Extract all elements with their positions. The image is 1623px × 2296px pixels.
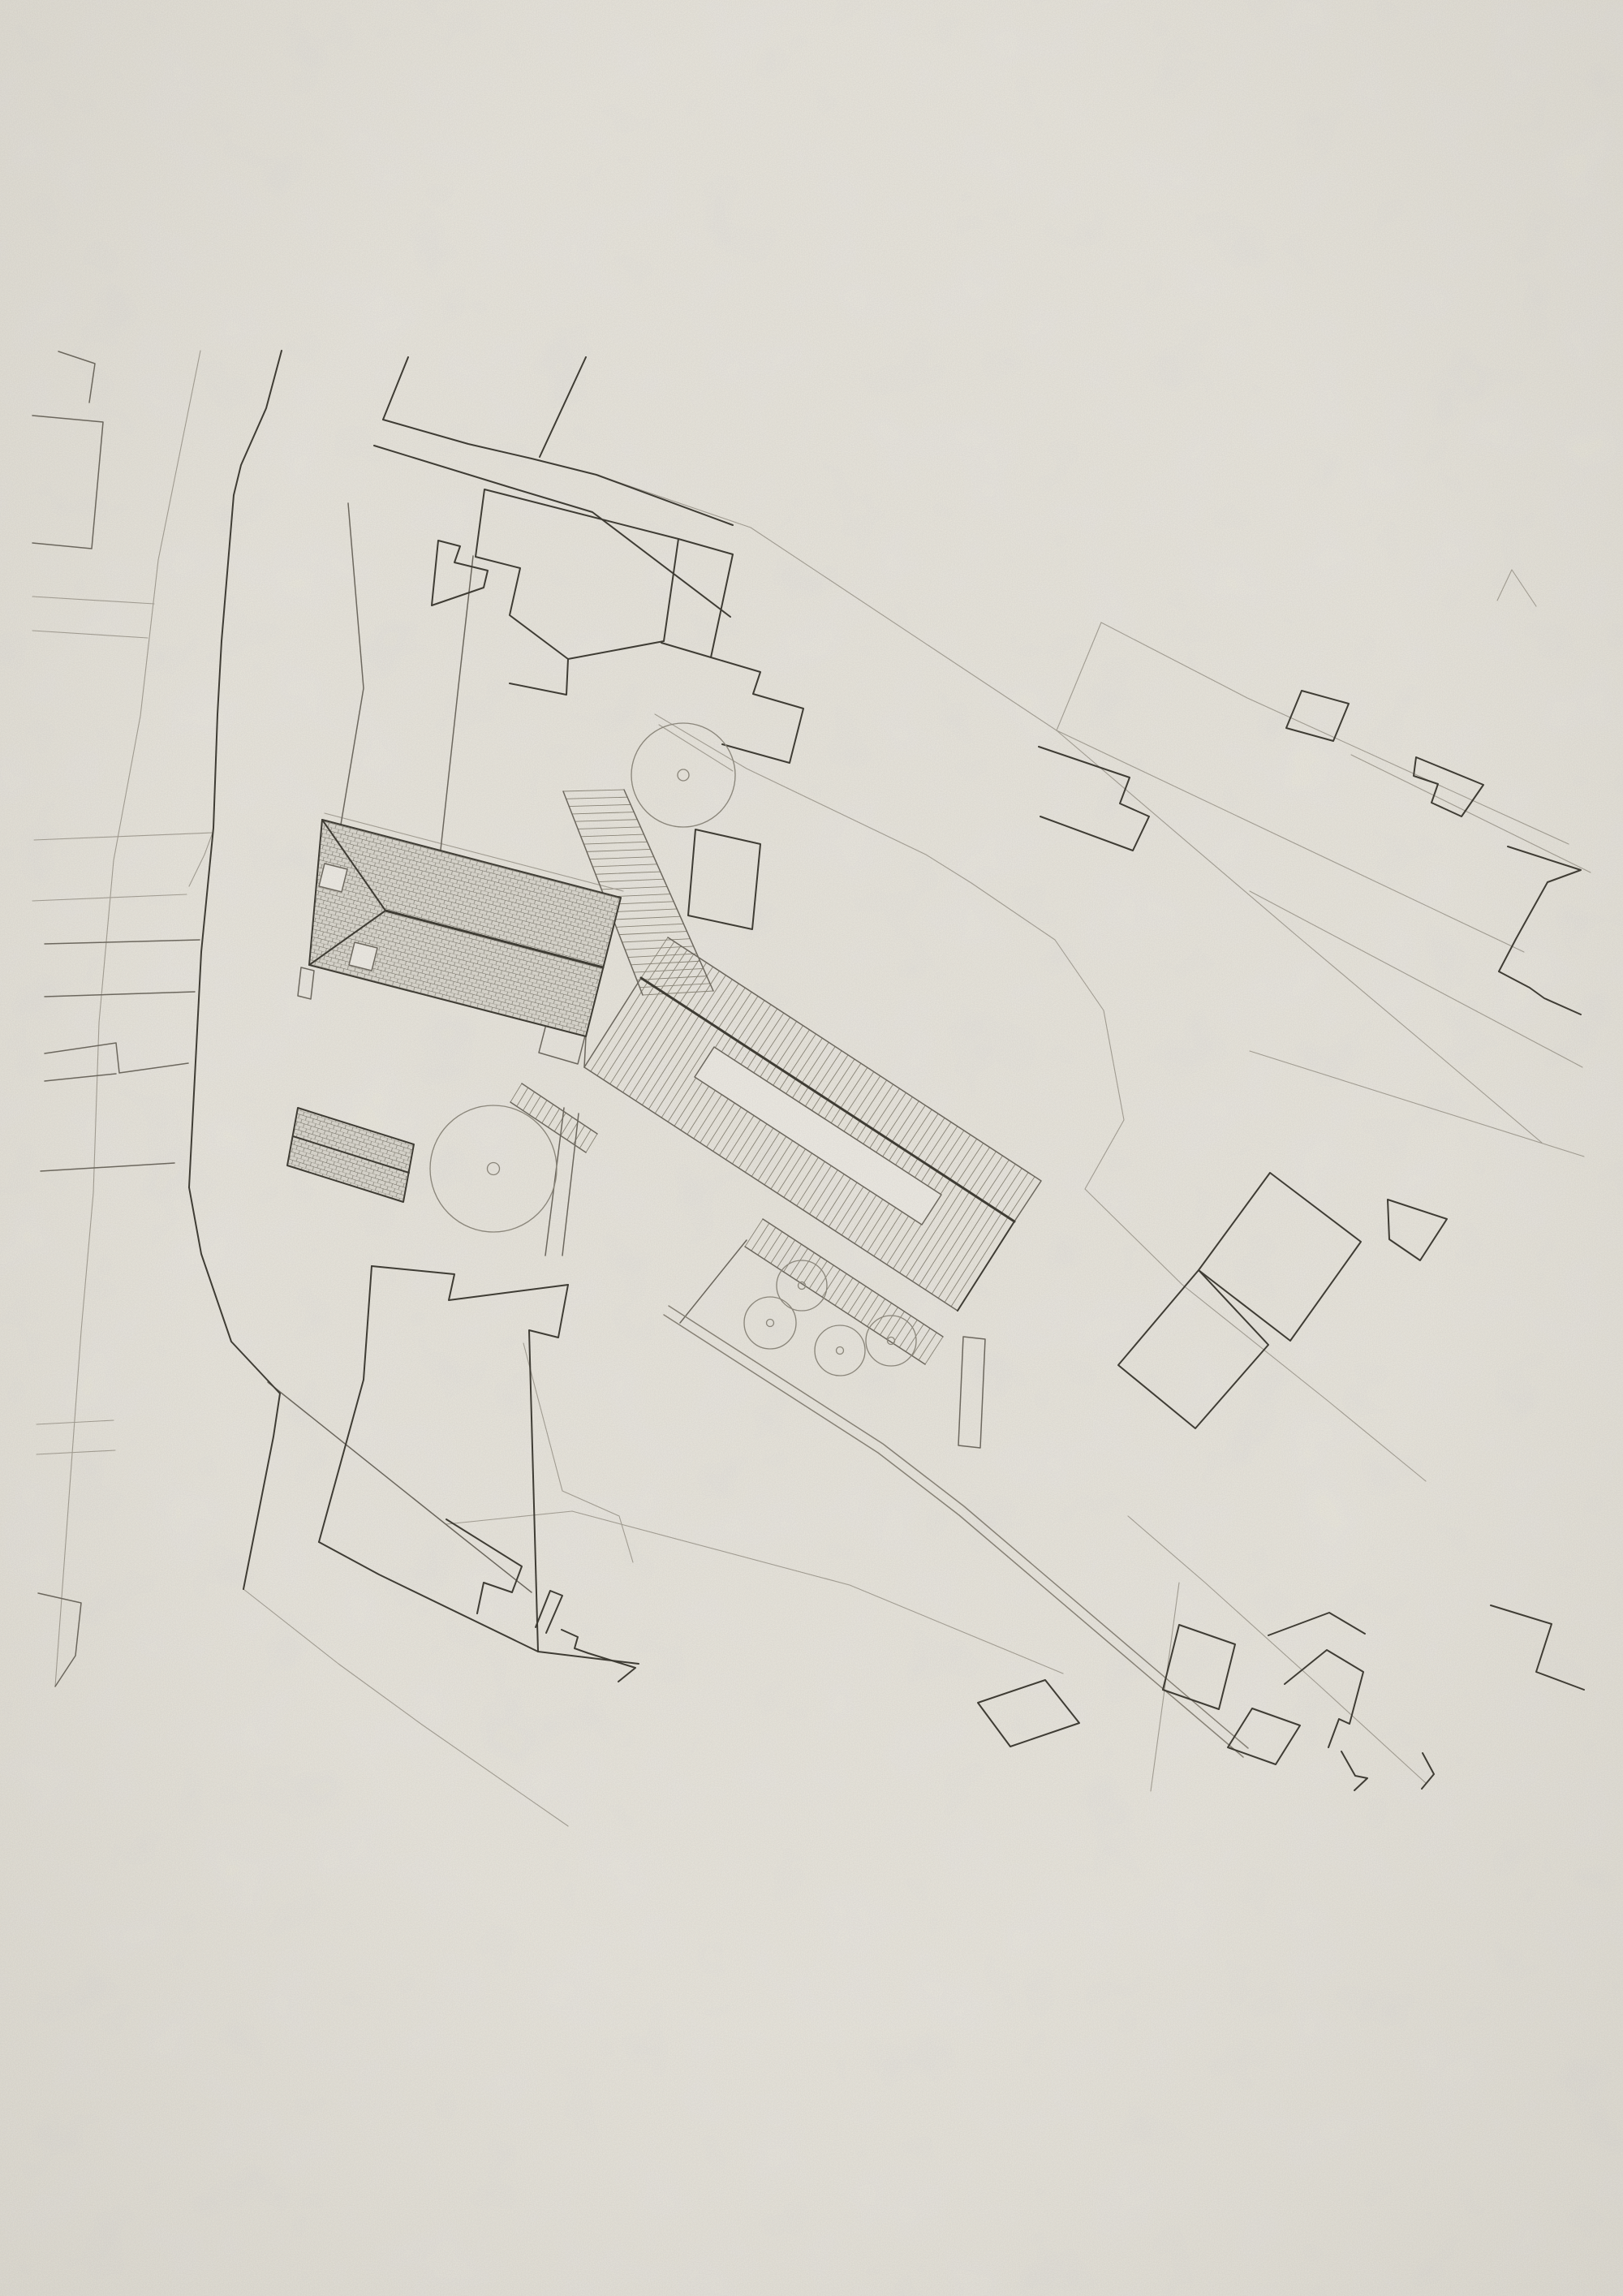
- site-plan-canvas: [0, 0, 1623, 2296]
- site-plan-sheet: [0, 0, 1623, 2296]
- paper-grain-texture: [0, 0, 1623, 2296]
